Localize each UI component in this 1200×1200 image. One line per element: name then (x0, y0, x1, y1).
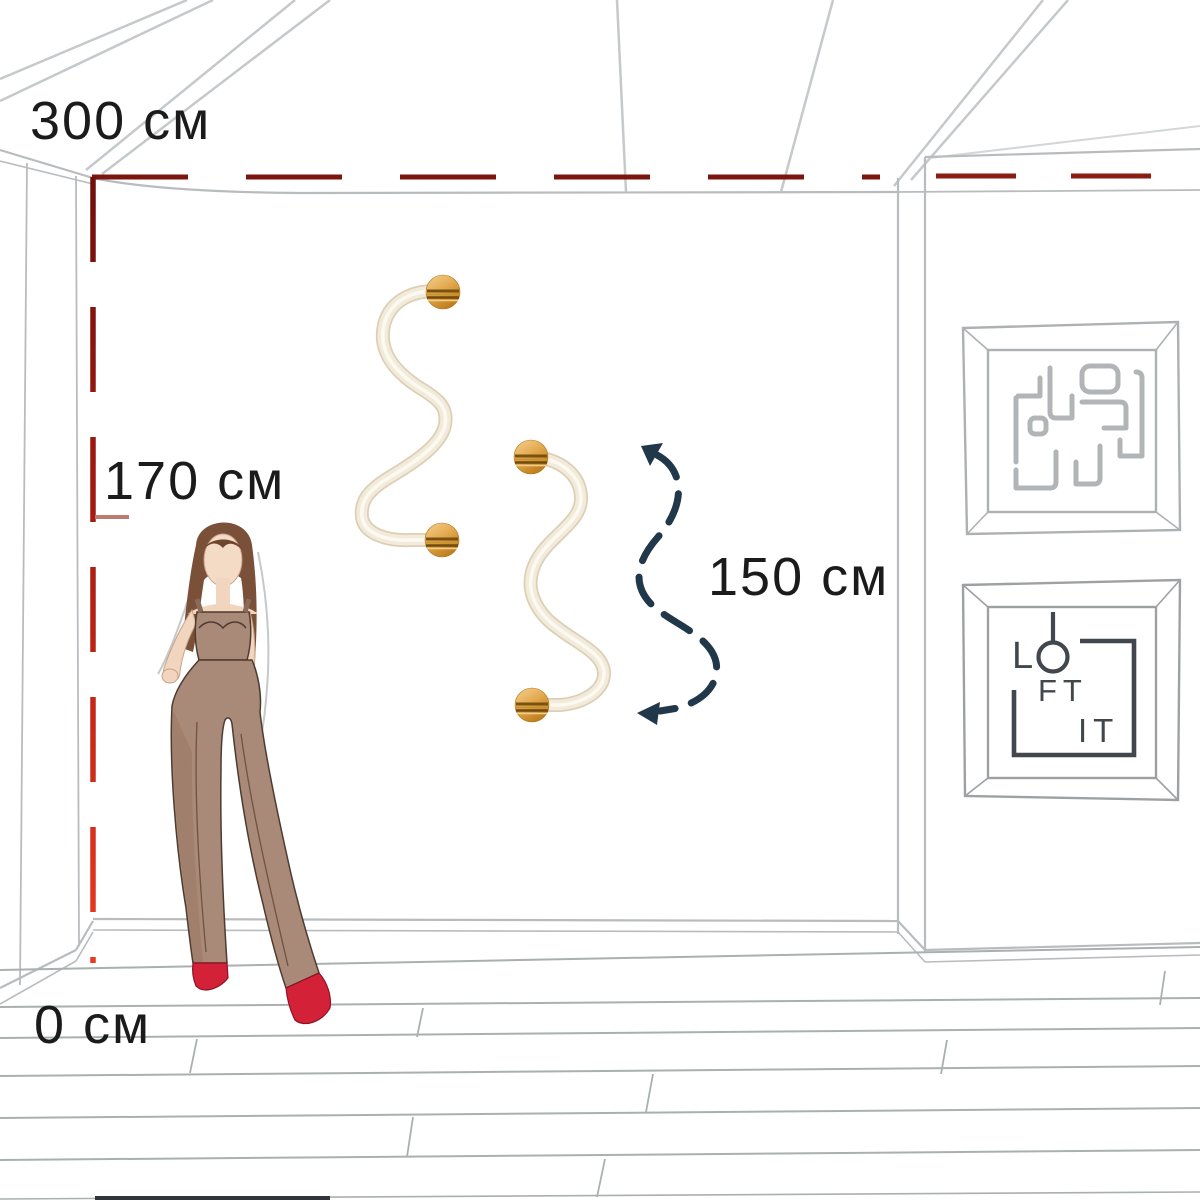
lamp-mount-disc (515, 688, 549, 722)
logo-letters-ft: FT (1038, 673, 1088, 708)
product-dimension-illustration: L FT IT (0, 0, 1200, 1200)
mannequin-height-label: 170 см (104, 454, 285, 508)
logo-letter-l: L (1012, 635, 1033, 677)
ceiling-height-label: 300 см (30, 94, 211, 148)
logo-letters-it: IT (1078, 712, 1119, 749)
floor-sketch (0, 947, 1200, 1200)
lamp-tube (531, 457, 604, 705)
lamp-mount-disc (426, 275, 460, 309)
brand-logo-frame: L FT IT (963, 580, 1180, 800)
floor-level-label: 0 см (34, 998, 151, 1052)
wall-lamp-left (362, 275, 460, 557)
logo-circle-o-icon (1039, 643, 1068, 672)
brand-logo: L FT IT (1012, 612, 1134, 755)
baseboards (0, 919, 1200, 1004)
lamp-tube (362, 291, 446, 540)
lamp-span-arrow (637, 443, 717, 725)
wall-edges-sketch (0, 149, 1200, 1004)
figure-bustier (195, 612, 250, 660)
maze-pattern-icon (1016, 366, 1142, 488)
corner-pillar (898, 157, 925, 953)
figure-boot-left (193, 963, 228, 990)
lamp-span-label: 150 см (708, 550, 889, 604)
maze-artwork-frame (963, 322, 1180, 534)
floor-edge-shadow (95, 1196, 330, 1200)
wall-lamp-right (514, 440, 604, 722)
lamp-mount-disc (425, 523, 459, 557)
arrowhead-down-icon (637, 702, 660, 725)
room-sketch: L FT IT (0, 0, 1200, 1200)
lamp-mount-disc (514, 440, 548, 474)
fashion-sketch-figure (158, 522, 330, 1023)
